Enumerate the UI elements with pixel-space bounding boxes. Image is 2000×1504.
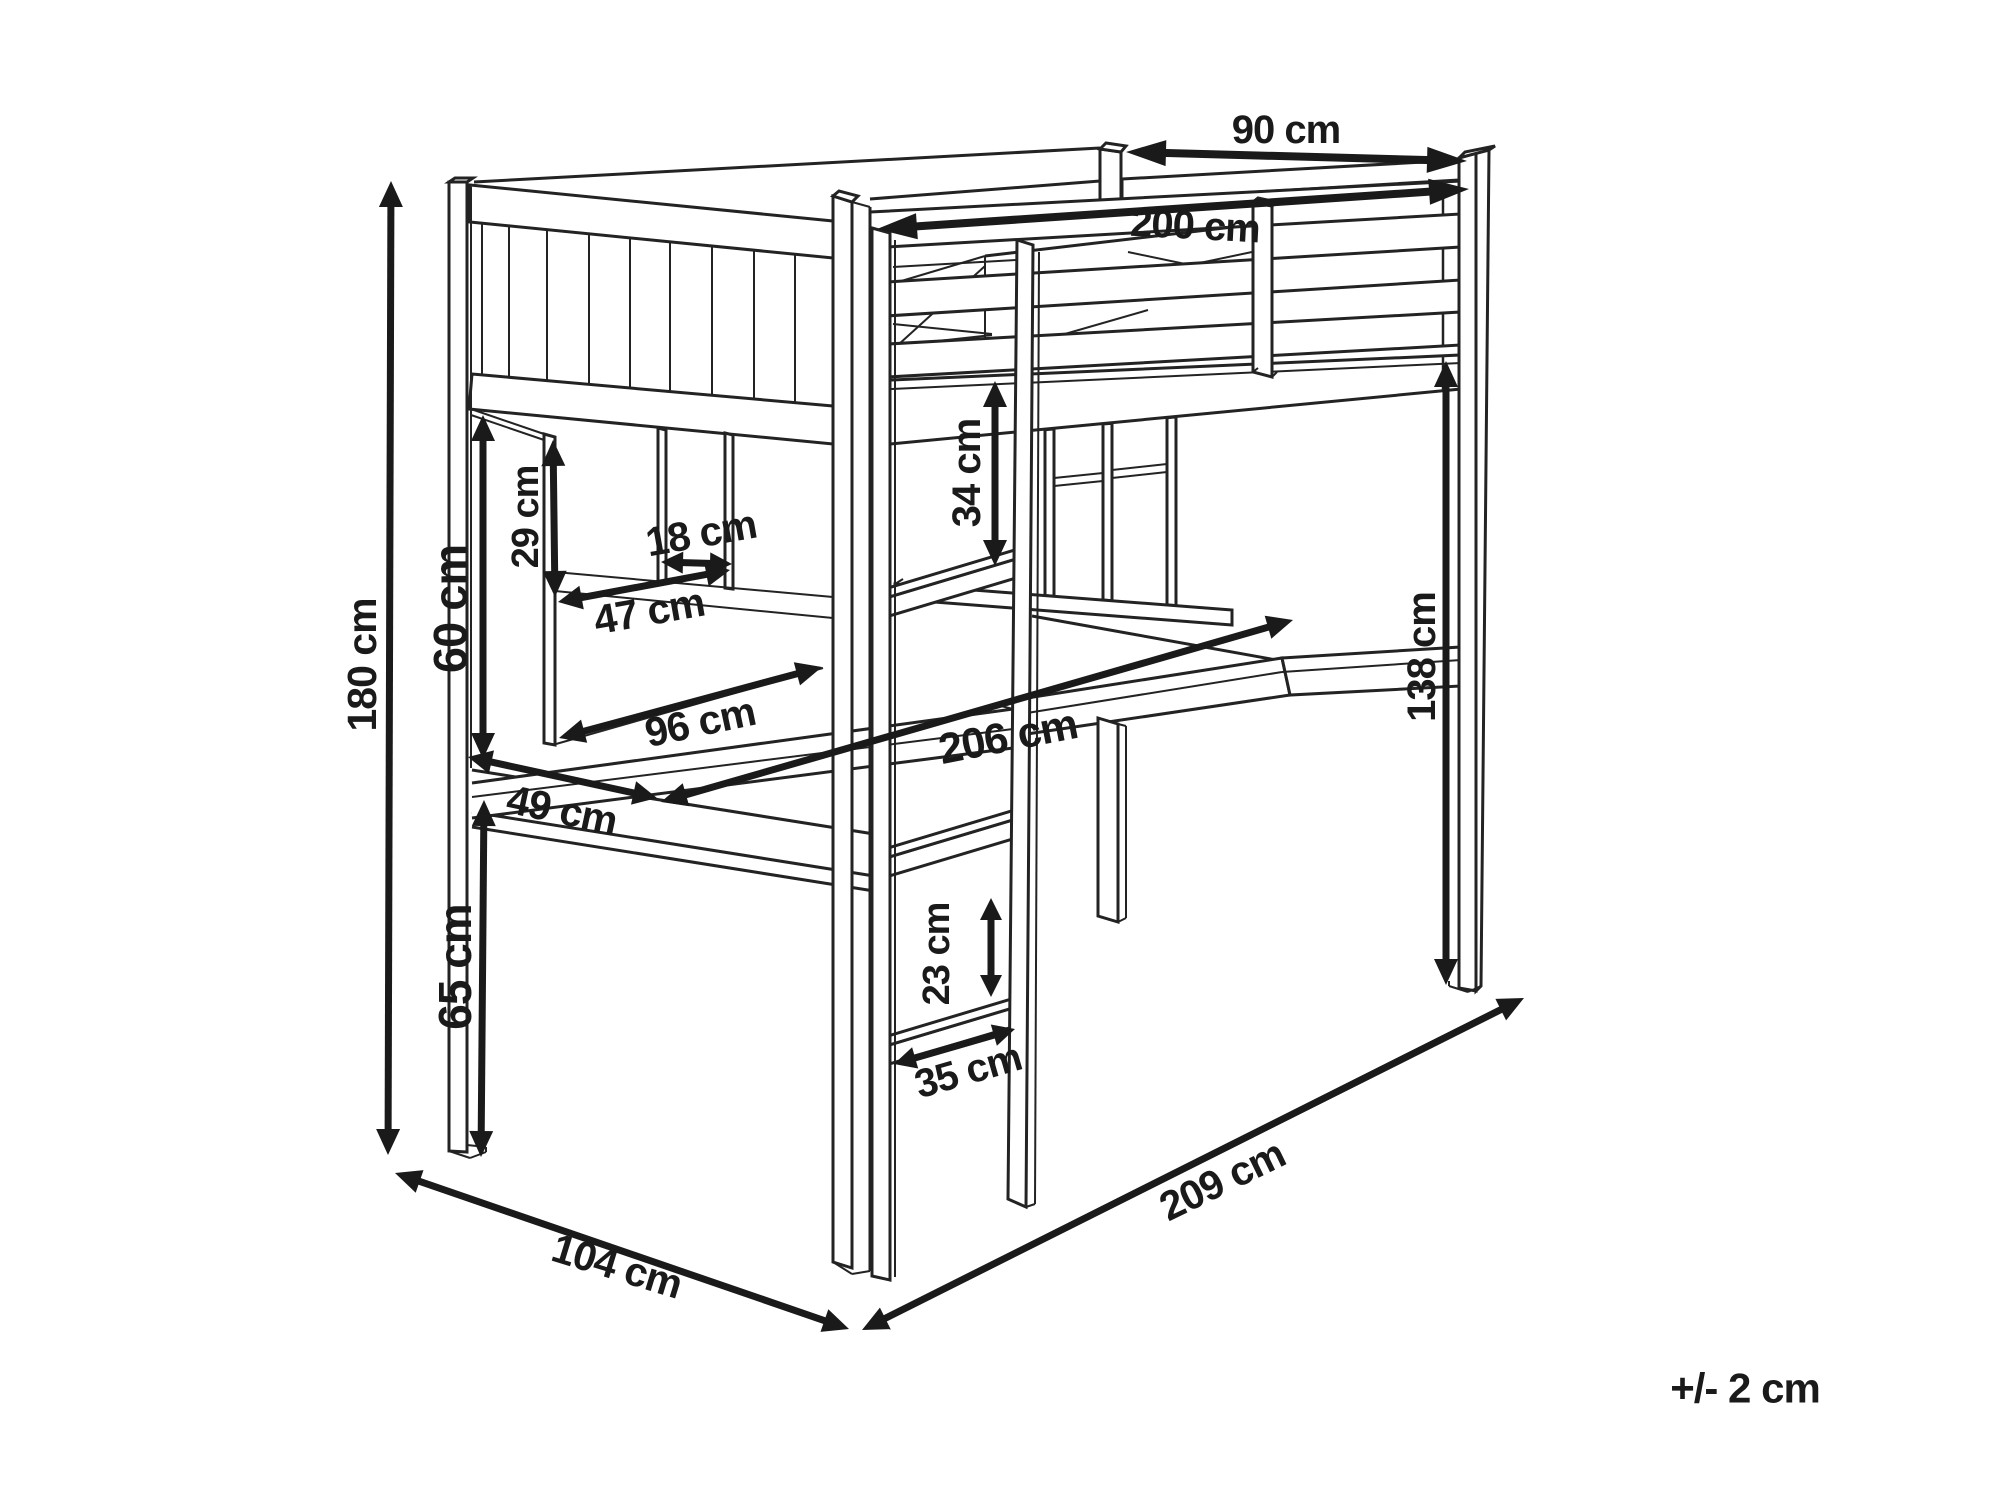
svg-text:+/- 2 cm: +/- 2 cm	[1670, 1365, 1820, 1412]
svg-text:180 cm: 180 cm	[339, 598, 385, 731]
svg-text:200 cm: 200 cm	[1129, 201, 1261, 252]
svg-text:23 cm: 23 cm	[916, 903, 958, 1006]
svg-text:138 cm: 138 cm	[1400, 592, 1444, 722]
svg-text:34 cm: 34 cm	[945, 419, 989, 527]
svg-text:90 cm: 90 cm	[1232, 108, 1340, 152]
svg-text:65 cm: 65 cm	[429, 904, 481, 1029]
svg-text:29 cm: 29 cm	[505, 466, 547, 569]
svg-text:60 cm: 60 cm	[424, 545, 477, 673]
